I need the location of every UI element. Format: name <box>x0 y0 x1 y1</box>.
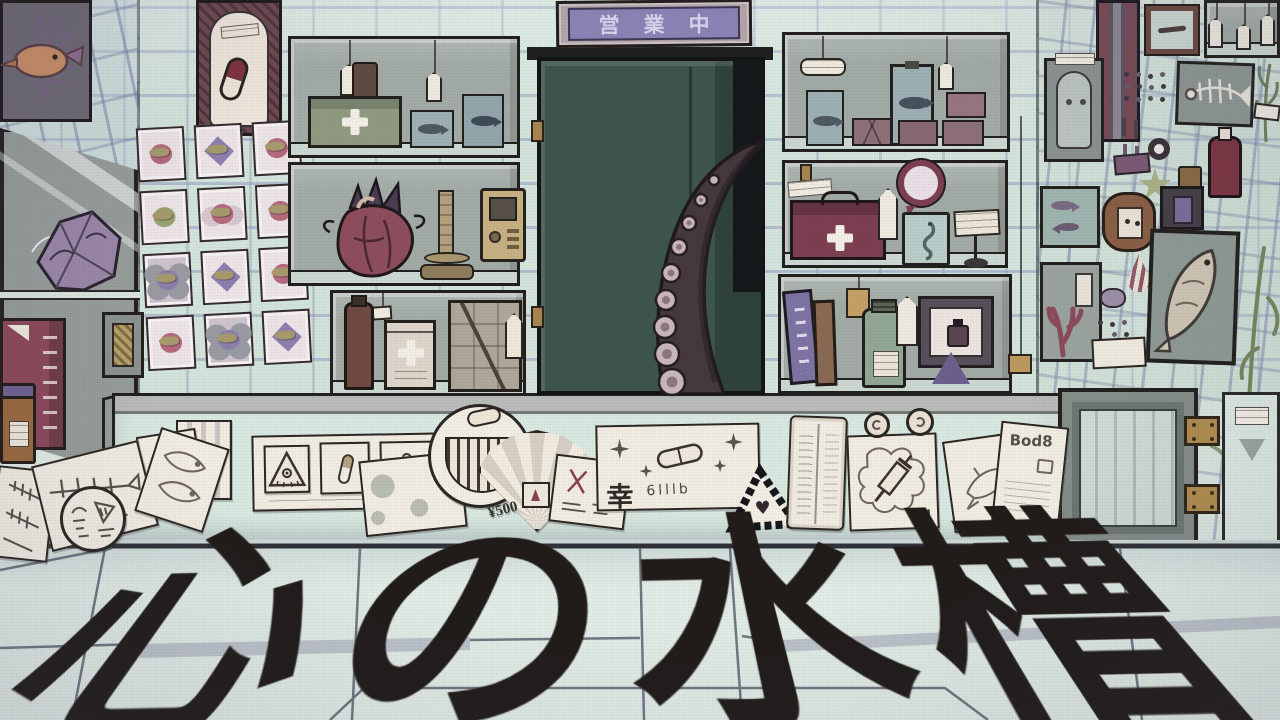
bottle-cap <box>351 295 367 307</box>
seahorse-icon <box>905 215 947 263</box>
wall-card <box>146 315 197 371</box>
fish-box-tall <box>462 94 504 148</box>
carton-box <box>384 320 436 390</box>
brown-bottle <box>344 302 374 390</box>
door-hinge <box>531 306 544 328</box>
wall-card-grid <box>136 120 312 371</box>
parcel <box>946 92 986 118</box>
stand-column <box>438 190 454 256</box>
capsule-frame-inner <box>209 11 269 127</box>
small-sticks <box>1122 118 1126 136</box>
cord-tag <box>1008 354 1032 374</box>
book-page-corner <box>7 325 29 341</box>
red-liquid-bottle <box>1208 136 1242 198</box>
lucky-scribble: 6lllb <box>646 481 691 499</box>
door-hinge <box>531 120 544 142</box>
pill-dots-small <box>1098 320 1103 325</box>
tag-string <box>822 36 824 60</box>
hanging-plate <box>800 58 846 76</box>
carton-cross <box>399 341 423 365</box>
bod-label: Bod8 <box>1009 431 1053 450</box>
mini-aquarium <box>1040 186 1100 248</box>
floor-title: 心の水槽 <box>0 512 1280 720</box>
wall-card <box>136 126 187 182</box>
ornate-frame <box>1102 192 1156 252</box>
fish-print-icon <box>471 116 495 126</box>
ink-frame <box>918 296 994 368</box>
fish-skeleton-icon <box>1178 64 1252 124</box>
parcel <box>898 120 938 146</box>
fan-seal-mark <box>531 489 540 501</box>
open-sign-text: 営業中 <box>568 6 740 41</box>
tag-string <box>1244 2 1246 26</box>
parcel <box>942 120 984 146</box>
fan-center-seal <box>522 482 550 508</box>
pill-dots <box>1124 72 1129 77</box>
stand-foot <box>420 264 474 280</box>
coral-window <box>1075 273 1093 307</box>
box-clasp <box>905 61 919 69</box>
plant-sprig <box>1250 58 1280 142</box>
seahorse-case <box>902 212 950 266</box>
wall-card <box>142 252 193 308</box>
console-buttons <box>507 229 519 233</box>
round-badge <box>57 483 130 556</box>
bottle-label <box>873 351 899 377</box>
purple-slab <box>1173 196 1193 224</box>
coin <box>864 412 890 438</box>
standing-sign <box>953 209 1000 237</box>
ink-frame-inner <box>929 307 983 357</box>
illustration-scene: 営業中 <box>0 0 1280 720</box>
brown-book <box>813 300 838 387</box>
crate <box>448 300 522 392</box>
wall-card <box>200 249 251 305</box>
amber-jar <box>0 392 36 464</box>
panel-triangle-mark <box>1239 439 1265 461</box>
crate-tag <box>505 313 523 359</box>
capsule-pill-icon <box>217 55 252 104</box>
plate-pill-icon <box>466 406 503 429</box>
dark-frame <box>1160 186 1204 230</box>
ghost-fish-icon <box>1056 71 1092 149</box>
eel-icon <box>1158 26 1186 34</box>
ornate-dots <box>1125 219 1130 224</box>
jar-label <box>9 421 29 447</box>
cabinet-hinge <box>1184 416 1220 446</box>
cup-doodle <box>1036 459 1053 475</box>
aid-cross <box>823 221 857 255</box>
eel-frame <box>1146 6 1198 54</box>
jar-lid <box>0 383 36 399</box>
hinge-screws <box>1192 491 1196 495</box>
small-frame-inner <box>112 323 134 367</box>
tag-string <box>1268 2 1270 16</box>
wall-card <box>139 189 190 245</box>
wall-card <box>197 186 248 242</box>
metal-plaque <box>1091 337 1146 370</box>
crystal-rock <box>26 204 126 294</box>
coin-swirl <box>872 420 882 430</box>
fish-print-icon <box>899 97 927 109</box>
small-fish-icon <box>1051 201 1073 210</box>
console-dpad <box>489 231 501 243</box>
capsule-label <box>220 23 259 39</box>
crystal-heart <box>314 172 434 284</box>
fish-box <box>410 110 454 148</box>
wall-card <box>204 312 255 368</box>
ring-item <box>1148 138 1170 160</box>
badge-doodles <box>60 486 126 552</box>
ink-cap <box>953 319 963 326</box>
console-screen <box>489 197 517 221</box>
lionfish-picture <box>0 0 92 122</box>
wall-ledge <box>0 290 140 300</box>
ink-bottle-icon <box>947 325 969 347</box>
pebble-item <box>1100 288 1126 308</box>
bottle-cork <box>871 299 897 313</box>
ghost-eyes <box>1066 99 1072 105</box>
panel-label <box>1235 407 1269 425</box>
hinge-screws <box>1192 423 1196 427</box>
small-fish-icon <box>1059 223 1079 231</box>
bottle-cap <box>1218 127 1232 141</box>
cord <box>1020 116 1022 356</box>
tag-string <box>349 40 351 66</box>
coin-swirl <box>915 417 925 427</box>
carton-text <box>395 369 427 385</box>
lionfish-icon <box>3 3 89 119</box>
parcel <box>852 118 892 146</box>
sign-pole <box>974 236 977 260</box>
small-wall-frame <box>102 312 144 378</box>
tag-string <box>1216 2 1218 20</box>
tag-string <box>434 40 436 74</box>
triangle-eye-card <box>264 445 311 494</box>
coin <box>906 408 934 436</box>
fish-skeleton-frame <box>1175 61 1255 128</box>
stand-base <box>424 252 470 264</box>
sign-base <box>964 258 988 268</box>
fish-print-icon <box>813 116 837 126</box>
cabinet-hinge <box>1184 484 1220 514</box>
ornate-inner <box>1117 207 1143 239</box>
tentacle <box>612 132 812 408</box>
first-aid-box-green <box>308 96 402 148</box>
open-sign: 営業中 <box>556 0 752 48</box>
capsule-frame <box>196 0 282 136</box>
ghost-label <box>1055 53 1095 65</box>
book-spine-marks <box>43 331 57 441</box>
wall-card <box>194 123 245 179</box>
floor-title-wrap: 心の水槽 <box>32 512 1226 720</box>
ghost-fish-frame <box>1044 58 1104 162</box>
fish-print-icon <box>418 124 442 134</box>
handheld-console <box>480 188 526 262</box>
wall-card <box>261 309 312 365</box>
triangle-eye-icon <box>266 447 309 492</box>
small-label <box>1253 102 1280 121</box>
carton-fold <box>387 331 433 333</box>
shelf-label <box>372 305 393 320</box>
pill-icon <box>337 453 355 485</box>
box-handle <box>821 191 859 205</box>
round-mirror <box>898 160 944 206</box>
tag-string <box>946 36 948 64</box>
purple-swatch <box>1113 152 1151 175</box>
